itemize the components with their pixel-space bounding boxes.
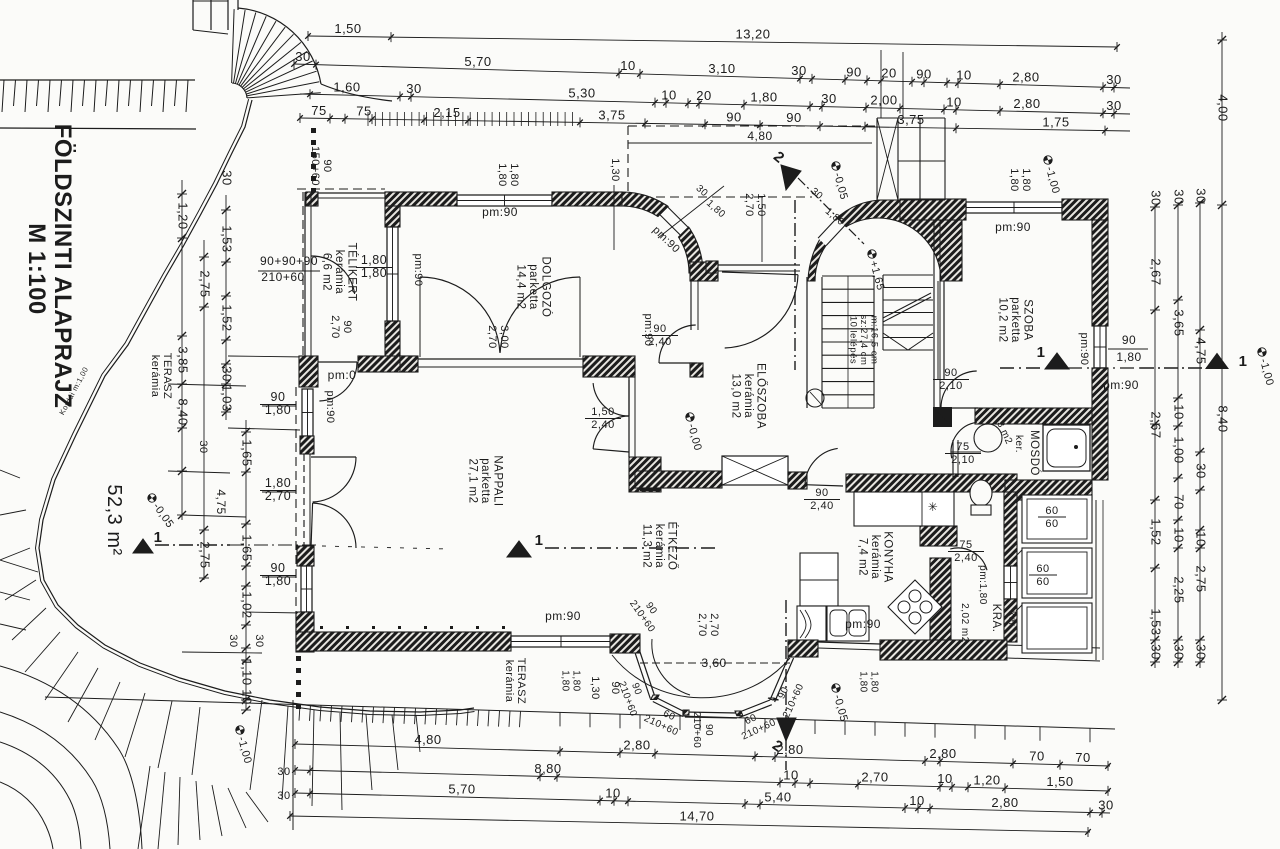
svg-text:2,80: 2,80 <box>623 738 650 753</box>
svg-text:pm:90: pm:90 <box>845 617 881 631</box>
svg-text:KRA.: KRA. <box>990 604 1002 633</box>
svg-text:90: 90 <box>271 390 286 404</box>
svg-text:30: 30 <box>406 81 421 96</box>
svg-text:2,80: 2,80 <box>1012 70 1039 85</box>
svg-text:ker.: ker. <box>1013 435 1024 453</box>
svg-text:5,70: 5,70 <box>448 782 475 797</box>
svg-text:1,52: 1,52 <box>1149 518 1164 545</box>
svg-text:1: 1 <box>1037 344 1046 361</box>
svg-text:4,75: 4,75 <box>214 489 228 514</box>
svg-text:30: 30 <box>1149 190 1164 205</box>
svg-text:2,702,70: 2,702,70 <box>696 613 720 636</box>
svg-text:1,53: 1,53 <box>220 225 235 252</box>
svg-text:2,70: 2,70 <box>861 769 888 784</box>
svg-text:30: 30 <box>1172 189 1187 204</box>
svg-text:2,15: 2,15 <box>433 105 460 120</box>
svg-text:4,80: 4,80 <box>414 732 441 747</box>
svg-text:1,80: 1,80 <box>265 476 291 490</box>
svg-text:20: 20 <box>696 88 711 103</box>
svg-text:30: 30 <box>1194 644 1209 659</box>
svg-text:5,40: 5,40 <box>764 789 791 804</box>
svg-text:3,75: 3,75 <box>897 112 924 127</box>
svg-text:1,65: 1,65 <box>240 534 255 561</box>
svg-text:1,801,80: 1,801,80 <box>560 670 582 691</box>
svg-text:2,40: 2,40 <box>810 500 833 512</box>
svg-text:MOSDÓ: MOSDÓ <box>1028 430 1041 476</box>
svg-text:1,80: 1,80 <box>1116 350 1141 364</box>
svg-text:3,65: 3,65 <box>1172 309 1187 336</box>
svg-text:2,25: 2,25 <box>1172 576 1187 603</box>
svg-text:pm:90: pm:90 <box>995 220 1031 234</box>
svg-text:3,002,70: 3,002,70 <box>486 325 510 348</box>
svg-text:2,02 m2: 2,02 m2 <box>959 603 970 643</box>
svg-text:pm:90: pm:90 <box>545 609 581 623</box>
svg-text:30: 30 <box>197 440 209 453</box>
svg-text:1,52: 1,52 <box>220 304 235 331</box>
svg-text:210+60: 210+60 <box>691 712 702 749</box>
svg-text:4,00: 4,00 <box>1216 94 1231 121</box>
svg-text:60: 60 <box>1045 505 1058 517</box>
svg-text:4,80: 4,80 <box>747 129 772 143</box>
svg-text:2,80: 2,80 <box>991 795 1018 810</box>
svg-text:2,75: 2,75 <box>1194 565 1209 592</box>
svg-text:10: 10 <box>1194 531 1209 546</box>
svg-text:1: 1 <box>535 532 544 549</box>
svg-text:5,70: 5,70 <box>464 54 491 69</box>
svg-text:1,20: 1,20 <box>973 772 1000 787</box>
svg-text:30: 30 <box>220 366 235 381</box>
svg-text:1,60: 1,60 <box>333 80 360 95</box>
svg-text:14,70: 14,70 <box>679 809 714 824</box>
svg-text:2,10: 2,10 <box>939 380 962 392</box>
svg-text:1,80: 1,80 <box>750 90 777 105</box>
svg-text:SZOBAparketta10,2 m2: SZOBAparketta10,2 m2 <box>997 297 1034 343</box>
svg-text:1,50: 1,50 <box>1046 774 1073 789</box>
svg-text:10: 10 <box>937 771 952 786</box>
svg-text:30: 30 <box>1172 644 1187 659</box>
svg-text:10: 10 <box>1172 527 1187 542</box>
svg-text:10: 10 <box>620 58 635 73</box>
svg-text:90: 90 <box>703 724 714 736</box>
svg-text:8,40: 8,40 <box>1216 405 1231 432</box>
svg-text:8,40: 8,40 <box>176 398 191 425</box>
svg-text:2,80: 2,80 <box>1013 96 1040 111</box>
svg-text:30: 30 <box>1098 797 1113 812</box>
svg-text:1,02: 1,02 <box>240 591 255 618</box>
svg-text:75: 75 <box>956 441 969 453</box>
svg-text:30: 30 <box>1106 72 1121 87</box>
svg-text:FÖLDSZINTI ALAPRAJZ: FÖLDSZINTI ALAPRAJZ <box>49 124 76 409</box>
svg-text:2,00: 2,00 <box>870 93 897 108</box>
svg-text:pm:1,80: pm:1,80 <box>977 565 988 605</box>
svg-text:90: 90 <box>944 367 957 379</box>
svg-text:1,50: 1,50 <box>591 406 614 418</box>
svg-text:1,10: 1,10 <box>240 658 255 685</box>
svg-text:1: 1 <box>1239 353 1248 370</box>
svg-text:4,75: 4,75 <box>1194 337 1209 364</box>
svg-text:TERASZkerámia: TERASZkerámia <box>149 353 173 399</box>
svg-text:10: 10 <box>605 785 620 800</box>
svg-text:70: 70 <box>1075 750 1090 765</box>
svg-text:5,30: 5,30 <box>568 85 595 100</box>
svg-text:3,10: 3,10 <box>708 61 735 76</box>
svg-text:75: 75 <box>311 103 326 118</box>
svg-text:1,80: 1,80 <box>265 574 291 588</box>
svg-text:pm:90: pm:90 <box>1078 332 1090 365</box>
svg-text:10: 10 <box>1172 404 1187 419</box>
svg-text:2,10: 2,10 <box>951 454 974 466</box>
svg-text:2,67: 2,67 <box>1149 258 1164 285</box>
svg-text:90: 90 <box>916 67 931 82</box>
svg-text:30: 30 <box>277 766 290 778</box>
svg-text:70: 70 <box>1172 494 1187 509</box>
svg-text:pm:90: pm:90 <box>1103 378 1139 392</box>
svg-text:1,801,80: 1,801,80 <box>1008 168 1032 191</box>
svg-text:1,03: 1,03 <box>220 384 235 411</box>
svg-text:10: 10 <box>956 68 971 83</box>
svg-text:30: 30 <box>1149 644 1164 659</box>
svg-text:90: 90 <box>846 65 861 80</box>
svg-text:2,40: 2,40 <box>648 336 671 348</box>
svg-text:2,40: 2,40 <box>954 552 977 564</box>
svg-text:ÉTKEZŐkerámia11,3 m2: ÉTKEZŐkerámia11,3 m2 <box>641 521 680 570</box>
svg-text:20: 20 <box>881 66 896 81</box>
svg-text:1: 1 <box>154 529 163 546</box>
svg-text:30: 30 <box>1194 188 1209 203</box>
svg-text:1,75: 1,75 <box>1042 114 1069 129</box>
svg-text:1,80: 1,80 <box>265 403 291 417</box>
svg-text:1,80: 1,80 <box>361 266 387 280</box>
svg-text:1,50: 1,50 <box>334 21 361 36</box>
svg-text:3,75: 3,75 <box>598 107 625 122</box>
svg-text:2,80: 2,80 <box>929 746 956 761</box>
svg-text:m:16,5 cmsz:27,4 cm10 lelépés: m:16,5 cmsz:27,4 cm10 lelépés <box>848 315 880 366</box>
svg-text:pm:90: pm:90 <box>324 390 336 423</box>
svg-text:2,75: 2,75 <box>198 541 213 568</box>
svg-text:75: 75 <box>959 539 972 551</box>
svg-text:KONYHAkerámia7,4 m2: KONYHAkerámia7,4 m2 <box>857 531 894 583</box>
svg-text:1,30: 1,30 <box>589 676 601 699</box>
svg-text:30: 30 <box>791 63 806 78</box>
svg-text:2,40: 2,40 <box>591 419 614 431</box>
svg-text:10: 10 <box>946 94 961 109</box>
svg-text:70: 70 <box>1029 749 1044 764</box>
svg-text:52,3 m²: 52,3 m² <box>103 484 125 555</box>
svg-text:60: 60 <box>1036 563 1049 575</box>
svg-text:10: 10 <box>909 793 924 808</box>
svg-text:1,65: 1,65 <box>240 439 255 466</box>
svg-text:pm:0: pm:0 <box>328 368 357 382</box>
svg-text:60: 60 <box>1045 518 1058 530</box>
svg-text:1,30: 1,30 <box>609 158 621 181</box>
svg-text:pm:90: pm:90 <box>412 253 424 286</box>
svg-text:pm:90: pm:90 <box>482 205 518 219</box>
svg-text:10: 10 <box>661 87 676 102</box>
svg-text:90: 90 <box>726 109 741 124</box>
svg-text:1,801,80: 1,801,80 <box>496 163 520 186</box>
svg-text:2,67: 2,67 <box>1149 411 1164 438</box>
svg-text:✳: ✳ <box>928 500 939 514</box>
svg-text:90: 90 <box>653 323 666 335</box>
svg-text:90: 90 <box>786 110 801 125</box>
svg-text:1,00: 1,00 <box>1172 436 1187 463</box>
svg-text:1,20: 1,20 <box>176 202 191 229</box>
svg-text:ker.: ker. <box>1006 611 1017 629</box>
svg-text:M 1:100: M 1:100 <box>23 223 50 315</box>
svg-text:90: 90 <box>815 487 828 499</box>
svg-text:10: 10 <box>240 689 255 704</box>
svg-text:DOLGOZÓparketta14,4 m2: DOLGOZÓparketta14,4 m2 <box>515 256 553 317</box>
svg-text:30: 30 <box>227 634 239 647</box>
svg-text:3,85: 3,85 <box>176 346 191 373</box>
svg-text:30: 30 <box>253 634 265 647</box>
svg-text:90: 90 <box>271 561 286 575</box>
svg-text:30: 30 <box>1194 463 1209 478</box>
svg-text:75: 75 <box>356 104 371 119</box>
svg-text:210+60: 210+60 <box>261 270 304 284</box>
svg-text:30: 30 <box>821 91 836 106</box>
svg-text:2,75: 2,75 <box>198 270 213 297</box>
svg-text:1,502,70: 1,502,70 <box>743 193 767 216</box>
svg-text:90+90+90: 90+90+90 <box>260 254 318 268</box>
svg-text:8,80: 8,80 <box>534 761 561 776</box>
svg-text:TERASZkerámia: TERASZkerámia <box>503 658 527 704</box>
svg-text:2,70: 2,70 <box>265 489 291 503</box>
svg-text:30: 30 <box>277 790 290 802</box>
svg-text:1,80: 1,80 <box>361 253 387 267</box>
svg-text:30: 30 <box>220 170 235 185</box>
svg-text:60: 60 <box>1036 576 1049 588</box>
svg-text:1,801,80: 1,801,80 <box>858 671 880 692</box>
svg-text:90: 90 <box>1122 333 1136 347</box>
svg-text:1,53: 1,53 <box>1149 608 1164 635</box>
svg-text:13,20: 13,20 <box>735 27 770 42</box>
svg-text:30: 30 <box>295 49 310 64</box>
svg-text:NAPPALIparketta27,1 m2: NAPPALIparketta27,1 m2 <box>467 455 504 506</box>
svg-text:30: 30 <box>1106 98 1121 113</box>
